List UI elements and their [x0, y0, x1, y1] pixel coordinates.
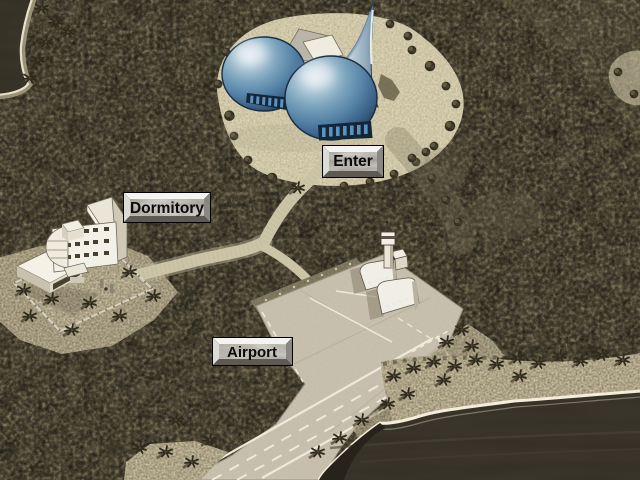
- svg-text:Enter: Enter: [333, 153, 373, 170]
- svg-text:Airport: Airport: [227, 344, 277, 361]
- svg-text:Dormitory: Dormitory: [130, 200, 204, 217]
